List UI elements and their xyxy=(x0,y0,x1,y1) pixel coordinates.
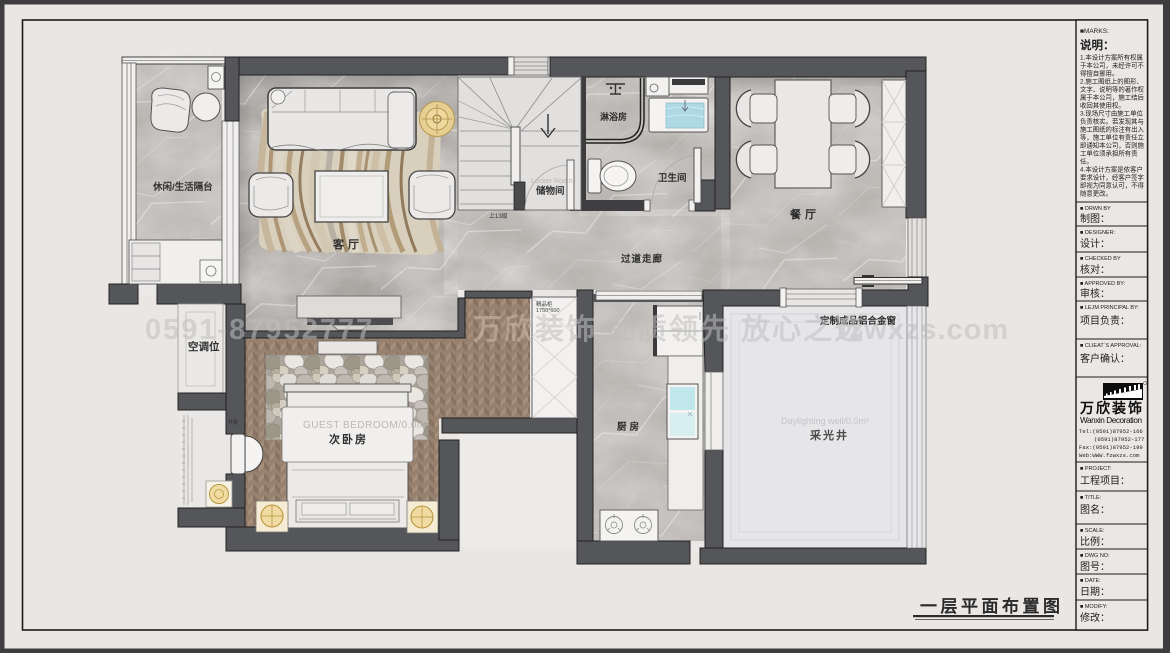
svg-text:过道走廊: 过道走廊 xyxy=(621,253,663,265)
svg-text:日期：: 日期： xyxy=(1080,586,1110,598)
svg-text:1.本设计方案所有权属: 1.本设计方案所有权属 xyxy=(1080,53,1143,62)
svg-text:Locker Room: Locker Room xyxy=(531,178,573,185)
svg-text:收回其使用权。: 收回其使用权。 xyxy=(1080,101,1125,110)
svg-text:■ DRWN BY: ■ DRWN BY xyxy=(1080,206,1111,212)
svg-text:制图：: 制图： xyxy=(1080,212,1110,225)
svg-text:fzwxzs.com: fzwxzs.com xyxy=(838,314,1009,346)
svg-text:■MARKS:: ■MARKS: xyxy=(1080,28,1109,35)
svg-text:■ CHECKED BY: ■ CHECKED BY xyxy=(1080,256,1121,262)
svg-text:■ SCALE:: ■ SCALE: xyxy=(1080,528,1105,534)
svg-text:2.施工图纸上的图形、: 2.施工图纸上的图形、 xyxy=(1080,77,1143,86)
svg-text:工程项目：: 工程项目： xyxy=(1080,475,1130,487)
svg-text:Web:WWW.fzwxzs.com: Web:WWW.fzwxzs.com xyxy=(1079,452,1140,459)
svg-text:■ DATE:: ■ DATE: xyxy=(1080,578,1101,584)
svg-text:■ TITLE:: ■ TITLE: xyxy=(1080,495,1102,501)
svg-text:核对：: 核对： xyxy=(1080,263,1110,276)
svg-text:一层平面布置图: 一层平面布置图 xyxy=(920,596,1064,616)
svg-text:Tel:(0591)87952-166: Tel:(0591)87952-166 xyxy=(1079,428,1143,435)
svg-text:Daylighting well/0.0m²: Daylighting well/0.0m² xyxy=(781,416,869,426)
svg-text:等，施工单位有责任立: 等，施工单位有责任立 xyxy=(1080,133,1145,142)
svg-text:任。: 任。 xyxy=(1080,157,1093,166)
svg-text:审核：: 审核： xyxy=(1080,287,1110,300)
svg-text:万欣装饰 品质领先 放心之选: 万欣装饰 品质领先 放心之选 xyxy=(473,312,865,346)
svg-text:■ APPROVED BY:: ■ APPROVED BY: xyxy=(1080,281,1126,287)
svg-text:■ CLIEAT´S APPROVAL:: ■ CLIEAT´S APPROVAL: xyxy=(1080,343,1142,349)
svg-text:修改：: 修改： xyxy=(1080,611,1110,624)
svg-text:即视为同意认可，不得: 即视为同意认可，不得 xyxy=(1080,181,1145,190)
svg-text:淋浴房: 淋浴房 xyxy=(600,111,627,122)
svg-text:负责核实。若发现其与: 负责核实。若发现其与 xyxy=(1080,117,1144,126)
svg-text:休闲/生活隔台: 休闲/生活隔台 xyxy=(152,181,213,193)
svg-text:■ PROJECT:: ■ PROJECT: xyxy=(1080,466,1112,472)
svg-text:书桌: 书桌 xyxy=(227,418,239,426)
svg-text:■ LEJM PRINCIPAL BY:: ■ LEJM PRINCIPAL BY: xyxy=(1080,305,1139,311)
svg-text:次卧房: 次卧房 xyxy=(329,432,368,446)
svg-text:■ DWG NO:: ■ DWG NO: xyxy=(1080,553,1110,559)
svg-text:3.现场尺寸由施工单位: 3.现场尺寸由施工单位 xyxy=(1080,109,1143,118)
svg-text:即通知本公司，否则施: 即通知本公司，否则施 xyxy=(1080,141,1145,150)
svg-text:储物间: 储物间 xyxy=(536,185,565,197)
svg-text:■ DESIGNER:: ■ DESIGNER: xyxy=(1080,230,1116,236)
svg-text:施工图纸的标注有出入: 施工图纸的标注有出入 xyxy=(1080,125,1145,134)
svg-text:餐厅: 餐厅 xyxy=(789,207,820,221)
svg-text:图号：: 图号： xyxy=(1080,561,1110,573)
svg-text:0591-87952777: 0591-87952777 xyxy=(145,314,374,346)
svg-text:随意更改。: 随意更改。 xyxy=(1080,189,1112,198)
svg-text:比例：: 比例： xyxy=(1080,535,1110,548)
svg-text:于本公司，未经许可不: 于本公司，未经许可不 xyxy=(1080,61,1145,70)
svg-text:项目负责：: 项目负责： xyxy=(1080,314,1130,327)
svg-text:GUEST BEDROOM/0.0m²: GUEST BEDROOM/0.0m² xyxy=(303,420,430,431)
svg-text:图名：: 图名： xyxy=(1080,503,1110,516)
svg-text:Wanxin Decoration: Wanxin Decoration xyxy=(1080,416,1142,425)
svg-text:(0591)87952-177: (0591)87952-177 xyxy=(1094,436,1144,443)
svg-text:上13级: 上13级 xyxy=(489,212,508,220)
svg-text:客户确认：: 客户确认： xyxy=(1080,352,1130,365)
svg-text:属于本公司，施工结后: 属于本公司，施工结后 xyxy=(1080,93,1145,102)
svg-text:客厅: 客厅 xyxy=(332,237,363,251)
svg-text:■ MODIFY:: ■ MODIFY: xyxy=(1080,604,1108,610)
svg-text:工单位须承担所有责: 工单位须承担所有责 xyxy=(1080,149,1138,158)
svg-text:要求设计，经客户签字: 要求设计，经客户签字 xyxy=(1080,173,1144,182)
svg-text:卫生间: 卫生间 xyxy=(658,172,687,184)
svg-text:Fax:(0591)87952-199: Fax:(0591)87952-199 xyxy=(1079,444,1143,451)
svg-text:设计：: 设计： xyxy=(1080,237,1110,250)
svg-text:说明：: 说明： xyxy=(1080,38,1115,52)
svg-text:采光井: 采光井 xyxy=(809,428,849,442)
svg-text:4.本设计方案是依客户: 4.本设计方案是依客户 xyxy=(1080,165,1143,174)
svg-text:得擅自挪用。: 得擅自挪用。 xyxy=(1080,69,1118,78)
svg-text:文字、说明等的著作权: 文字、说明等的著作权 xyxy=(1080,85,1145,94)
svg-text:厨房: 厨房 xyxy=(617,421,642,433)
svg-text:精品柜: 精品柜 xyxy=(536,300,553,308)
